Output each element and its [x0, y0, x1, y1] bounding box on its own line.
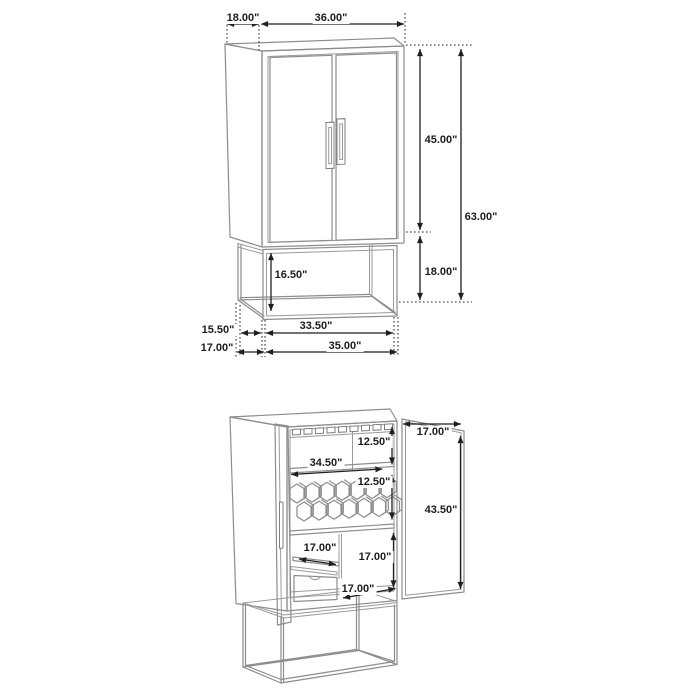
- dim-label-base-top-width: 33.50": [298, 320, 335, 332]
- dim-label-lower-depth: 17.00": [340, 583, 377, 595]
- dim-label-door-height: 43.50": [423, 504, 460, 516]
- left-door: [270, 55, 332, 242]
- dim-label-base-bottom-depth: 17.00": [199, 342, 236, 354]
- metal-base-frame: [238, 244, 397, 320]
- dim-label-overall-depth: 18.00": [225, 12, 262, 24]
- metal-base-frame: [243, 590, 397, 684]
- door-handle: [280, 502, 284, 548]
- open-left-door: [275, 424, 291, 625]
- cabinet-body: [225, 38, 404, 247]
- dim-label-overall-height: 63.00": [463, 211, 500, 223]
- dim-label-drawer-width: 17.00": [302, 542, 339, 554]
- dim-label-shelf-width: 34.50": [308, 457, 345, 469]
- dim-label-cabinet-height: 45.00": [423, 134, 460, 146]
- dim-label-base-height: 18.00": [423, 266, 460, 278]
- dim-label-wine-rack-height: 12.50": [356, 476, 393, 488]
- drawer: [294, 576, 337, 602]
- dim-label-base-top-depth: 15.50": [200, 324, 237, 336]
- top-view-closed-cabinet: [225, 13, 472, 357]
- dim-label-stemware-height: 12.50": [356, 436, 393, 448]
- dim-label-base-clearance: 16.50": [273, 269, 310, 281]
- dim-label-lower-height: 17.00": [357, 551, 394, 563]
- dimension-diagram-canvas: 18.00" 36.00" 45.00" 63.00" 18.00" 16.50…: [0, 0, 700, 700]
- dim-label-door-width: 17.00": [415, 426, 452, 438]
- dim-label-overall-width: 36.00": [313, 12, 350, 24]
- dim-label-base-bottom-width: 35.00": [327, 340, 364, 352]
- bottom-view-open-cabinet: [230, 409, 464, 683]
- top-view-dimensions: [227, 13, 472, 357]
